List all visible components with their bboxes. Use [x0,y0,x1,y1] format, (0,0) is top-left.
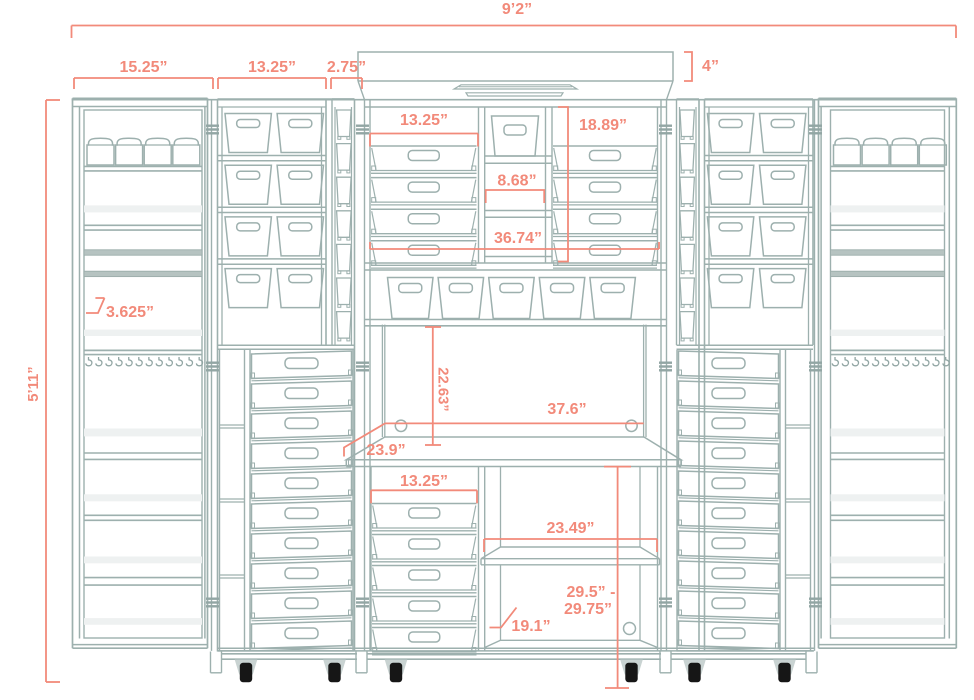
svg-text:29.75”: 29.75” [564,601,612,618]
svg-text:13.25”: 13.25” [400,112,448,129]
svg-text:18.89”: 18.89” [579,117,627,134]
svg-text:8.68”: 8.68” [497,173,536,190]
svg-text:23.49”: 23.49” [546,520,594,537]
svg-text:2.75”: 2.75” [327,59,366,76]
svg-text:29.5” -: 29.5” - [567,584,616,601]
svg-text:15.25”: 15.25” [119,59,167,76]
svg-text:13.25”: 13.25” [248,59,296,76]
svg-text:9’2”: 9’2” [502,1,532,18]
svg-text:3.625”: 3.625” [106,304,154,321]
svg-text:22.63”: 22.63” [435,367,451,411]
svg-text:19.1”: 19.1” [511,618,550,635]
svg-text:4”: 4” [702,58,719,75]
svg-text:5’11”: 5’11” [26,366,42,401]
svg-text:23.9”: 23.9” [366,442,405,459]
svg-text:37.6”: 37.6” [547,401,586,418]
svg-text:13.25”: 13.25” [400,473,448,490]
svg-text:36.74”: 36.74” [494,230,542,247]
